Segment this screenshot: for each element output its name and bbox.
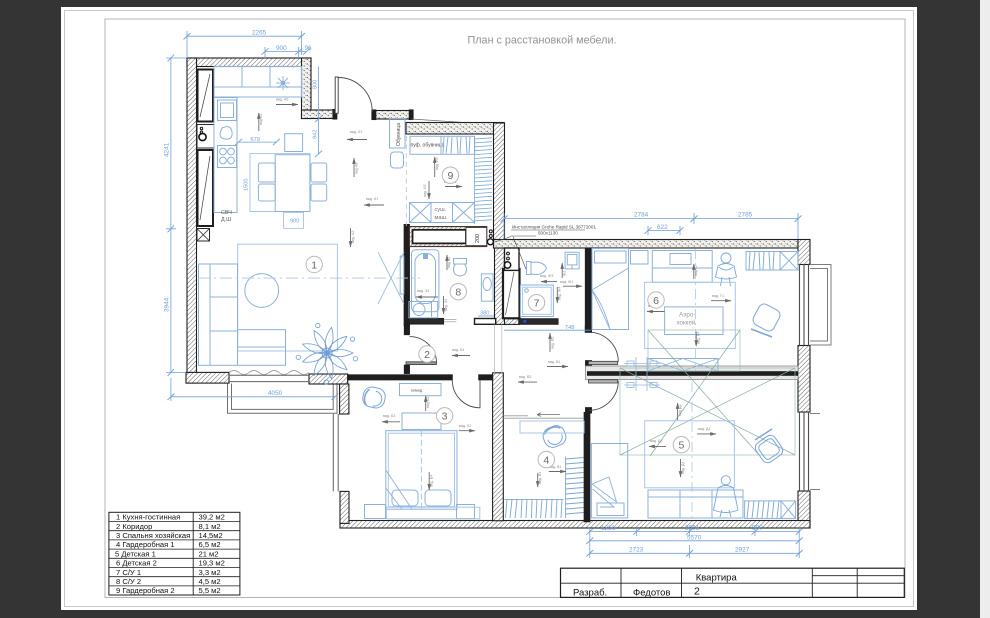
svg-text:вид А4: вид А4: [259, 114, 263, 125]
svg-text:вид. В4: вид. В4: [538, 472, 542, 484]
svg-text:пуф. обувница: пуф. обувница: [411, 143, 445, 149]
svg-text:вид. В2: вид. В2: [550, 337, 554, 349]
svg-text:3,3 м2: 3,3 м2: [199, 568, 221, 577]
svg-text:вид. Д3: вид. Д3: [650, 439, 662, 443]
svg-text:900: 900: [752, 525, 763, 532]
svg-text:вид. Ж3: вид. Ж3: [540, 274, 553, 278]
svg-text:вид. Г4: вид. Г4: [697, 332, 701, 344]
svg-text:3: 3: [442, 411, 448, 423]
svg-text:вид. Б4: вид. Б4: [430, 475, 434, 487]
svg-text:Квартира: Квартира: [696, 572, 738, 583]
svg-text:19,3 м2: 19,3 м2: [199, 559, 225, 568]
svg-text:вид З2: вид З2: [447, 257, 451, 268]
svg-text:900: 900: [290, 219, 299, 225]
svg-text:5: 5: [678, 440, 684, 452]
svg-text:вид. А5: вид. А5: [276, 98, 288, 102]
svg-text:суш.: суш.: [435, 207, 447, 213]
svg-text:200: 200: [475, 234, 481, 243]
svg-text:942: 942: [313, 130, 319, 139]
svg-text:План с расстановкой мебели.: План с расстановкой мебели.: [468, 35, 617, 47]
svg-text:вид. Б4: вид. Б4: [452, 348, 464, 352]
svg-text:6,5 м2: 6,5 м2: [199, 540, 221, 549]
svg-text:21 м2: 21 м2: [199, 549, 219, 558]
svg-text:маш.: маш.: [435, 215, 448, 221]
svg-text:2927: 2927: [735, 547, 750, 554]
svg-text:вид. Д4: вид. Д4: [681, 462, 685, 474]
svg-text:вид. Ж1: вид. Ж1: [560, 280, 573, 284]
svg-text:вид. В3: вид. В3: [519, 375, 531, 379]
svg-text:вид. Г1: вид. Г1: [712, 294, 724, 298]
svg-text:хоккей: хоккей: [677, 320, 696, 327]
svg-text:вид. Д1: вид. Д1: [698, 427, 710, 431]
svg-text:2265: 2265: [252, 30, 267, 37]
svg-text:1: 1: [311, 259, 317, 271]
svg-text:900: 900: [276, 45, 287, 52]
svg-text:вид. И3: вид. И3: [435, 157, 439, 170]
svg-text:вид. Б3: вид. Б3: [383, 414, 395, 418]
svg-text:8,1 м2: 8,1 м2: [199, 522, 221, 531]
svg-text:6 Детская 2: 6 Детская 2: [116, 559, 157, 568]
svg-text:вид. И2: вид. И2: [423, 184, 427, 197]
svg-text:8 С/У 2: 8 С/У 2: [116, 577, 141, 586]
svg-text:8: 8: [455, 287, 461, 299]
svg-text:2661: 2661: [685, 525, 700, 532]
svg-text:1 Кухня-гостинная: 1 Кухня-гостинная: [116, 513, 180, 522]
svg-text:Д.Ш: Д.Ш: [221, 217, 231, 223]
svg-text:Ж2: Ж2: [563, 271, 567, 276]
svg-text:СВЧ: СВЧ: [221, 210, 232, 216]
svg-text:3944: 3944: [164, 297, 171, 312]
svg-text:3 Спальня хозяйская: 3 Спальня хозяйская: [116, 531, 190, 540]
svg-text:1500: 1500: [244, 179, 250, 191]
svg-text:вид. А7: вид. А7: [366, 197, 378, 201]
svg-text:вид. З4: вид. З4: [444, 299, 448, 311]
svg-text:2: 2: [424, 349, 430, 361]
svg-text:500х1130: 500х1130: [538, 231, 558, 236]
svg-text:748: 748: [565, 325, 574, 331]
svg-text:вид. В1: вид. В1: [548, 360, 560, 364]
svg-text:4,5 м2: 4,5 м2: [199, 577, 221, 586]
svg-text:вид Д2: вид Д2: [678, 405, 682, 416]
svg-text:622: 622: [657, 224, 668, 231]
svg-text:Обувница: Обувница: [396, 123, 402, 146]
svg-text:96: 96: [305, 45, 313, 52]
svg-text:5,5 м2: 5,5 м2: [199, 586, 221, 595]
svg-text:вид. А7: вид. А7: [350, 130, 362, 134]
svg-text:5570: 5570: [687, 534, 702, 541]
svg-text:Инсталляция Grohe Rapid SL 387: Инсталляция Grohe Rapid SL 38772001: [512, 225, 596, 230]
svg-text:вид Б2: вид Б2: [426, 397, 430, 408]
svg-text:4 Гардеробная 1: 4 Гардеробная 1: [116, 540, 175, 549]
svg-text:800: 800: [313, 80, 319, 89]
svg-text:9: 9: [447, 170, 453, 182]
svg-text:2723: 2723: [629, 547, 644, 554]
svg-text:вид. А2: вид. А2: [351, 231, 355, 243]
svg-text:вид А8: вид А8: [355, 163, 359, 174]
svg-text:комод: комод: [411, 388, 423, 393]
svg-text:вид Г2: вид Г2: [694, 265, 698, 276]
svg-text:4050: 4050: [268, 390, 283, 397]
svg-text:вид. Ж4: вид. Ж4: [558, 287, 562, 300]
svg-text:2784: 2784: [634, 212, 649, 219]
svg-text:2 Коридор: 2 Коридор: [116, 522, 152, 531]
svg-text:вид. Б1: вид. Б1: [459, 424, 471, 428]
svg-text:вид. З3: вид. З3: [417, 289, 429, 293]
svg-text:2: 2: [694, 585, 700, 597]
svg-text:1256: 1256: [601, 525, 616, 532]
svg-text:39,2 м2: 39,2 м2: [199, 513, 225, 522]
svg-text:9 Гардеробная 2: 9 Гардеробная 2: [116, 586, 175, 595]
svg-text:Аэро-: Аэро-: [679, 312, 695, 319]
svg-text:5 Детская 1: 5 Детская 1: [115, 549, 156, 558]
svg-text:7 С/У 1: 7 С/У 1: [116, 568, 141, 577]
svg-text:2785: 2785: [738, 212, 753, 219]
svg-text:4: 4: [543, 454, 549, 466]
svg-text:4241: 4241: [164, 142, 171, 157]
svg-text:Федотов: Федотов: [633, 587, 671, 598]
svg-text:6: 6: [653, 295, 659, 307]
svg-text:14,5м2: 14,5м2: [199, 531, 223, 540]
svg-text:Разраб.: Разраб.: [573, 587, 607, 598]
svg-text:7: 7: [534, 298, 540, 310]
